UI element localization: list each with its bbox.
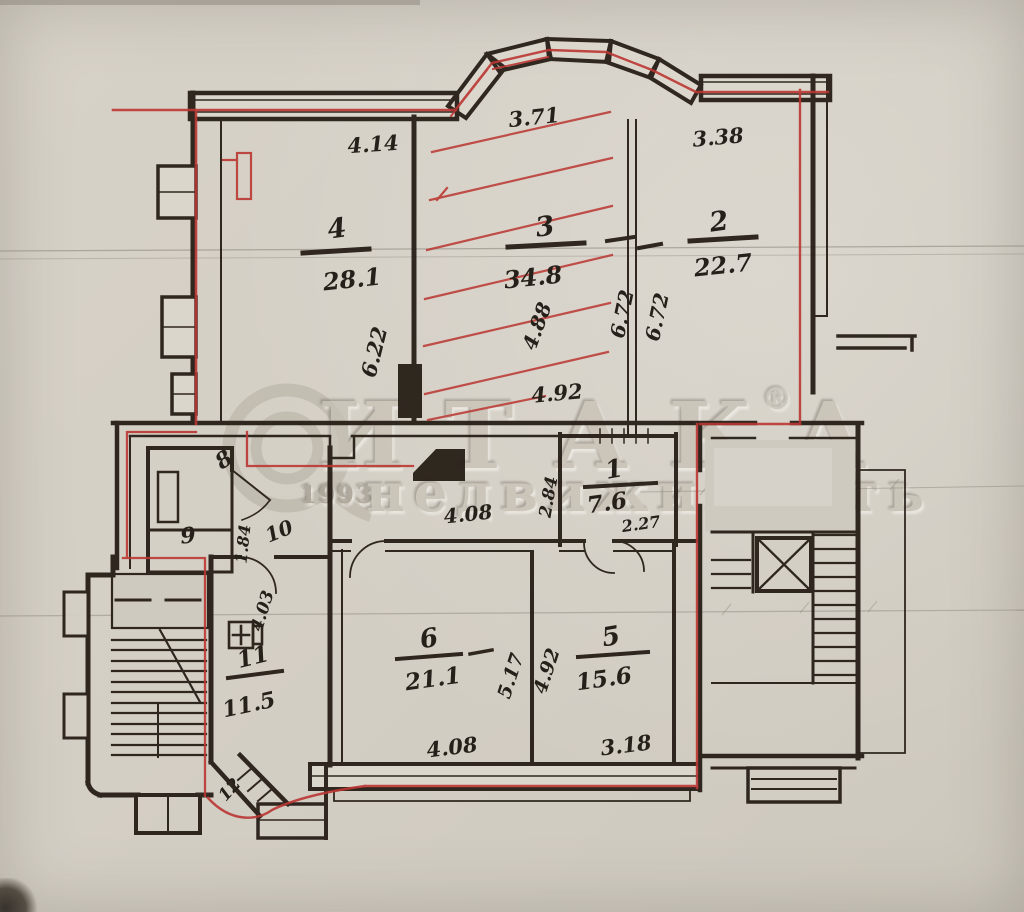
dim-bay-width: 3.71 (507, 102, 560, 132)
dim-hall-left-a: 1.84 (232, 524, 255, 565)
scan-corner-blob (0, 878, 38, 912)
left-wall-window-boxes (158, 166, 196, 414)
room3-area: 34.8 (502, 260, 563, 295)
dim-hall-width: 4.08 (443, 500, 494, 529)
dim-room3-width: 4.92 (530, 378, 583, 407)
room1-area: 7.6 (585, 487, 628, 519)
floorplan-sheet: ​ ИТАКА ® 1993 недвижимость ⌐ (0, 0, 1024, 912)
room9-number: 9 (179, 522, 197, 549)
walls (64, 39, 915, 838)
room4-area: 28.1 (321, 262, 382, 297)
dim-room4-width: 4.14 (347, 130, 400, 159)
room2-number: 2 (708, 205, 731, 238)
room2-area: 22.7 (692, 248, 753, 283)
dim-room2-width: 3.38 (691, 122, 744, 151)
floor-plan-drawing (0, 0, 1024, 912)
